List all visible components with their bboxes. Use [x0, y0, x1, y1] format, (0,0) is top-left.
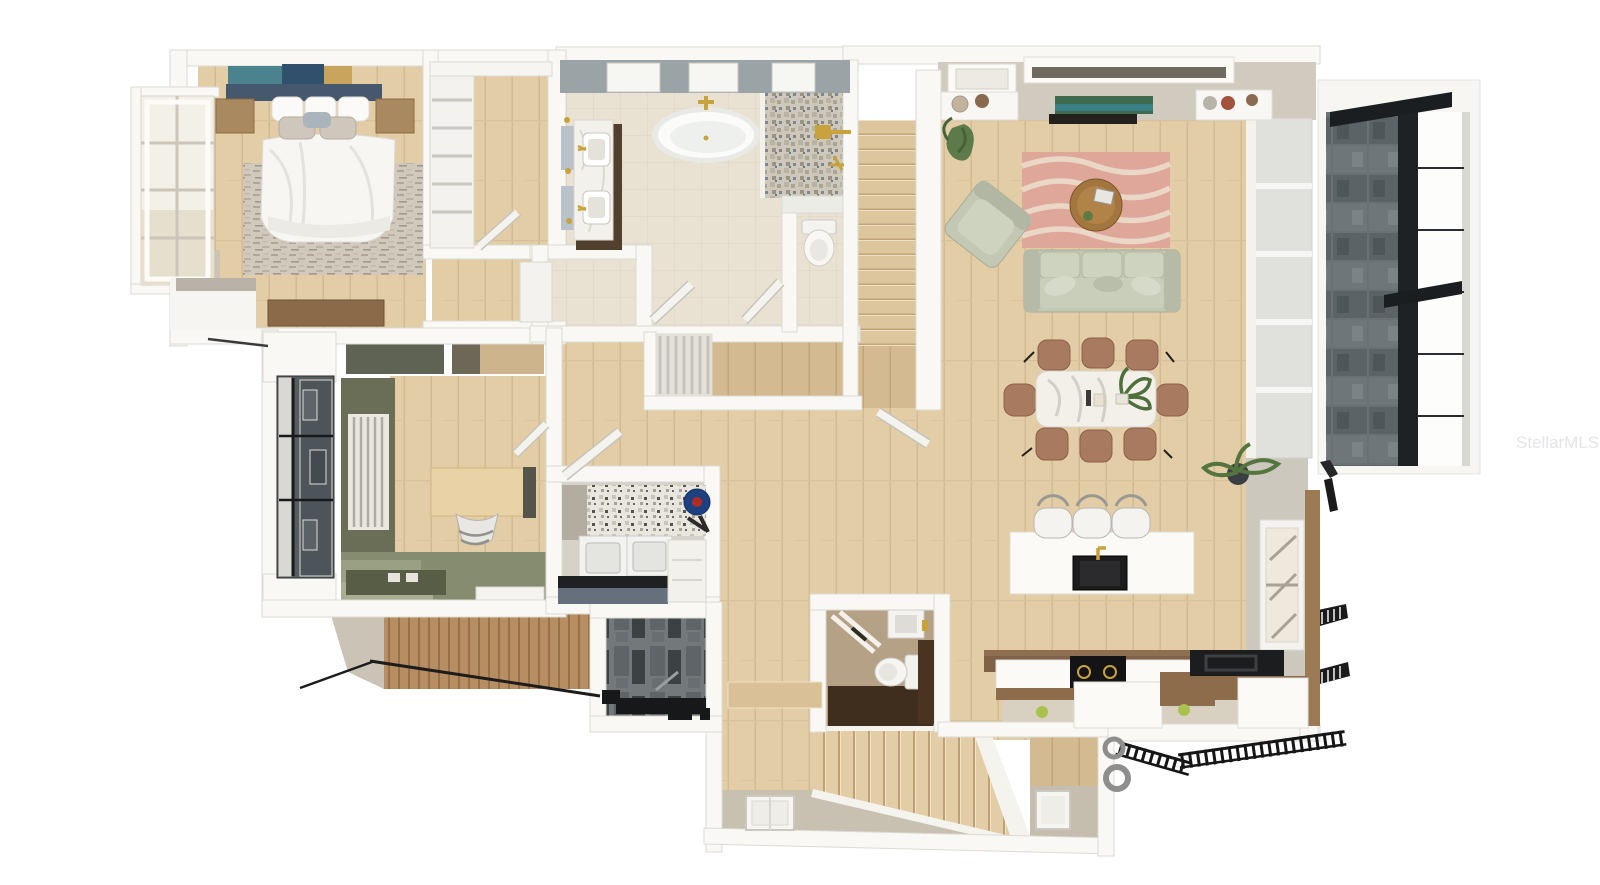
svg-text:StellarMLS: StellarMLS: [1516, 433, 1599, 452]
